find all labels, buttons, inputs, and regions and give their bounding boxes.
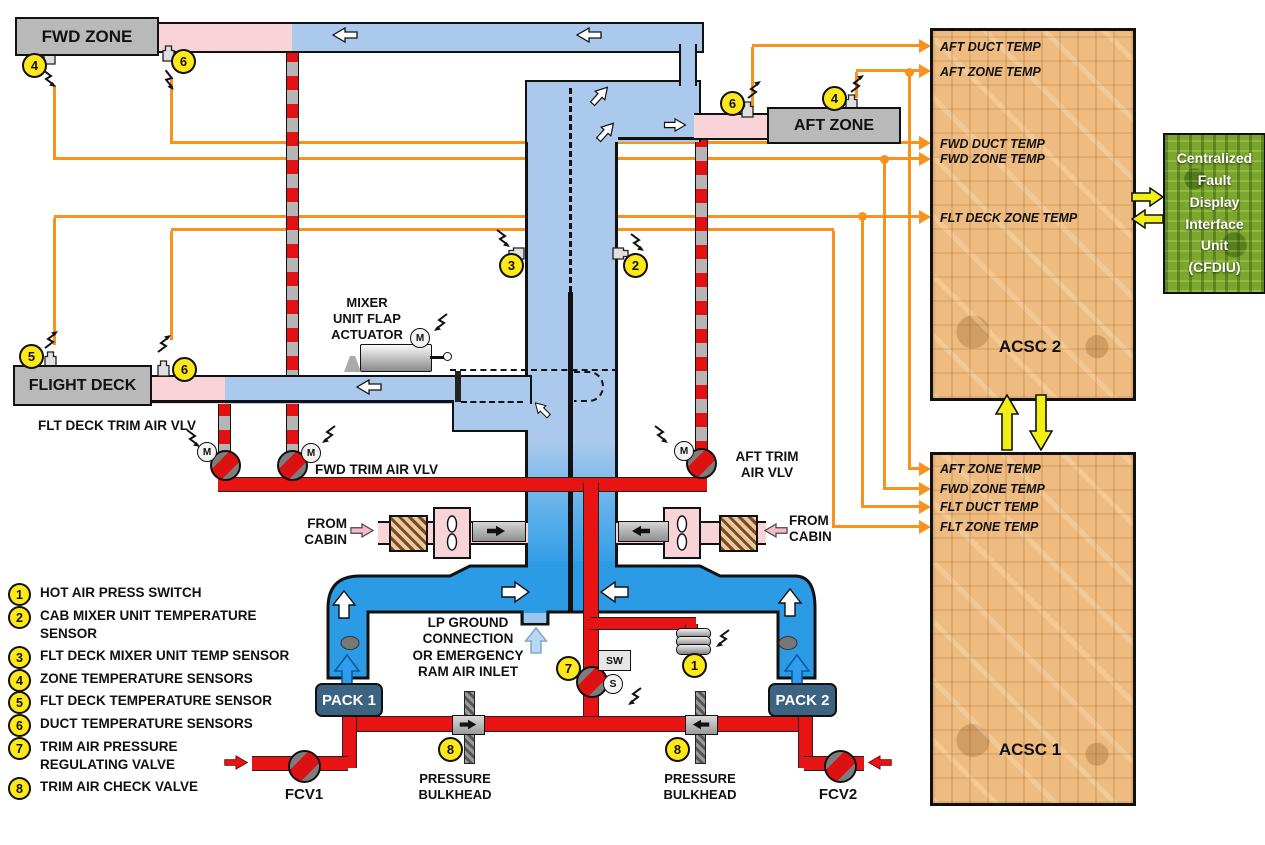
legend-text: FLT DECK TEMPERATURE SENSOR [40, 691, 272, 710]
acsc1-input-label: FLT DUCT TEMP [940, 500, 1038, 515]
badge-check-valve: 8 [438, 737, 463, 762]
signal-line [908, 72, 911, 470]
legend-badge: 5 [8, 691, 31, 714]
legend-badge: 7 [8, 737, 31, 760]
signal-line [54, 157, 919, 160]
legend-text: CAB MIXER UNIT TEMPERATURE SENSOR [40, 606, 257, 642]
pack2-box: PACK 2 [768, 683, 837, 717]
pack2-label: PACK 2 [776, 692, 830, 709]
flap-actuator-body [360, 344, 432, 372]
riser-edge-left [525, 140, 528, 572]
legend-item-5: 5 FLT DECK TEMPERATURE SENSOR [8, 691, 272, 714]
cfdiu-label: Centralized Fault Display Interface Unit… [1177, 148, 1252, 278]
trim-air-riser-fltdeck [218, 402, 231, 452]
warm-air-section [157, 24, 292, 51]
badge-zone-sensor: 4 [22, 53, 47, 78]
aft-trim-vlv-label: AFT TRIM AIR VLV [736, 449, 799, 482]
acsc1-input-label: AFT ZONE TEMP [940, 462, 1041, 477]
signal-junction [858, 212, 867, 221]
fan-blades-icon [675, 515, 689, 551]
flow-arrow-icon [662, 118, 688, 132]
pack1-label: PACK 1 [322, 692, 376, 709]
flap-bar [455, 371, 461, 402]
pack1-box: PACK 1 [315, 683, 383, 717]
duct-edge [148, 400, 454, 403]
legend-text: TRIM AIR CHECK VALVE [40, 777, 198, 796]
lightning-arrow-icon [848, 72, 870, 94]
duct-temp-sensor-icon [157, 360, 170, 377]
ram-air-arrow-icon [526, 628, 547, 653]
mixer-divider [568, 292, 573, 612]
fan-blades-icon [445, 515, 459, 551]
signal-line [884, 487, 919, 490]
flap-dashed-line [461, 401, 523, 403]
aft-zone-supply-duct [694, 113, 769, 140]
data-bus-arrow-icon [1131, 209, 1164, 229]
pressure-bulkhead-right-label: PRESSURE BULKHEAD [664, 771, 737, 803]
legend-badge: 3 [8, 646, 31, 669]
switch-circle: S [603, 674, 623, 694]
legend-badge: 8 [8, 777, 31, 800]
acsc2-title: ACSC 2 [999, 337, 1061, 358]
legend-item-7: 7 TRIM AIR PRESSURE REGULATING VALVE [8, 737, 178, 773]
legend-item-6: 6 DUCT TEMPERATURE SENSORS [8, 714, 253, 737]
signal-line [53, 85, 56, 160]
legend-badge: 1 [8, 583, 31, 606]
badge-cab-mixer-sensor: 2 [623, 253, 648, 278]
flight-deck-duct-extension [452, 400, 528, 432]
flow-arrow-icon [626, 525, 656, 537]
signal-line [862, 505, 919, 508]
lightning-arrow-icon [316, 424, 338, 446]
motor-icon: M [301, 443, 321, 463]
badge-check-valve: 8 [665, 737, 690, 762]
flow-arrow-icon [481, 525, 511, 537]
lightning-arrow-icon [628, 232, 650, 254]
flt-deck-trim-vlv-label: FLT DECK TRIM AIR VLV [38, 418, 196, 434]
flow-arrow-icon [576, 27, 602, 43]
legend-badge: 6 [8, 714, 31, 737]
acsc2-input-label: AFT ZONE TEMP [940, 65, 1041, 80]
badge-fltdeck-mixer-sensor: 3 [499, 253, 524, 278]
flow-arrow-icon [356, 379, 382, 395]
lightning-arrow-icon [155, 332, 177, 354]
lightning-arrow-icon [428, 312, 450, 334]
recirc-filter [389, 515, 428, 552]
badge-press-reg-valve: 7 [556, 656, 581, 681]
signal-junction [905, 68, 914, 77]
fcv2-valve [824, 750, 857, 783]
switch-box: SW [598, 650, 631, 671]
fcv2-label: FCV2 [819, 786, 857, 804]
signal-line [909, 467, 919, 470]
legend-text: TRIM AIR PRESSURE REGULATING VALVE [40, 737, 178, 773]
check-valve-arrow-icon [690, 719, 712, 730]
trim-air-riser-fwd [286, 48, 299, 375]
lightning-arrow-icon [622, 686, 644, 708]
pack-inlet-seal [341, 637, 359, 650]
signal-line [170, 231, 173, 340]
bleed-main-pipe [346, 716, 804, 732]
legend-item-8: 8 TRIM AIR CHECK VALVE [8, 777, 198, 800]
signal-line [861, 218, 864, 508]
recirc-filter [719, 515, 758, 552]
aft-zone-box: AFT ZONE [767, 107, 901, 144]
badge-duct-sensor: 6 [171, 49, 196, 74]
flap-actuator-foot [344, 356, 361, 372]
bleed-in-arrow-icon [866, 755, 894, 770]
trim-air-riser-aft [695, 133, 708, 452]
aft-zone-label: AFT ZONE [794, 117, 874, 135]
lightning-arrow-icon [42, 328, 64, 350]
lightning-arrow-icon [652, 424, 674, 446]
riser-edge-right [615, 140, 618, 572]
legend-badge: 4 [8, 669, 31, 692]
bleed-in-arrow-icon [222, 755, 250, 770]
badge-fltdeck-temp-sensor: 5 [19, 344, 44, 369]
acsc2-input-label: FWD DUCT TEMP [940, 137, 1045, 152]
signal-line [752, 44, 919, 47]
badge-hot-air-switch: 1 [682, 653, 707, 678]
legend-text: ZONE TEMPERATURE SENSORS [40, 669, 253, 688]
ac-zone-control-schematic: FWD ZONE AFT ZONE FLIGHT DECK M M M M SW… [0, 0, 1265, 845]
legend-text: HOT AIR PRESS SWITCH [40, 583, 202, 602]
pack-inlet-seal [779, 637, 797, 650]
legend-text: FLT DECK MIXER UNIT TEMP SENSOR [40, 646, 289, 665]
acsc2-input-label: FWD ZONE TEMP [940, 152, 1045, 167]
signal-line [833, 525, 919, 528]
lightning-arrow-icon [710, 628, 732, 650]
motor-icon: M [410, 328, 430, 348]
acsc2-input-label: AFT DUCT TEMP [940, 40, 1041, 55]
mixer-centerline-dashed [569, 88, 572, 292]
signal-line [883, 159, 886, 490]
motor-icon: M [197, 442, 217, 462]
signal-junction [880, 155, 889, 164]
signal-line [832, 231, 835, 528]
data-bus-arrow-icon [1029, 394, 1053, 451]
fwd-trim-vlv-label: FWD TRIM AIR VLV [315, 462, 438, 478]
legend-text: DUCT TEMPERATURE SENSORS [40, 714, 253, 733]
fcv1-valve [288, 750, 321, 783]
legend-item-1: 1 HOT AIR PRESS SWITCH [8, 583, 202, 606]
trim-air-riser-fwd-lower [286, 402, 299, 452]
legend-item-2: 2 CAB MIXER UNIT TEMPERATURE SENSOR [8, 606, 257, 642]
fwd-zone-box: FWD ZONE [15, 17, 159, 56]
data-bus-arrow-icon [1131, 187, 1164, 207]
acsc1-input-label: FWD ZONE TEMP [940, 482, 1045, 497]
flap-swing-arc [574, 371, 604, 402]
flap-actuator-knob [443, 352, 452, 361]
recirc-fan [433, 507, 471, 559]
lightning-arrow-icon [494, 228, 516, 250]
fcv1-label: FCV1 [285, 786, 323, 804]
fwd-zone-supply-duct [155, 22, 704, 53]
duct-connector [679, 44, 697, 86]
check-valve-arrow-icon [457, 719, 479, 730]
legend-item-3: 3 FLT DECK MIXER UNIT TEMP SENSOR [8, 646, 289, 669]
lightning-arrow-icon [745, 78, 767, 100]
acsc2-input-label: FLT DECK ZONE TEMP [940, 211, 1077, 226]
duct-edge [618, 137, 697, 140]
cfdiu-box: Centralized Fault Display Interface Unit… [1163, 133, 1265, 294]
cabin-in-arrow-icon [350, 523, 374, 538]
signal-line [53, 218, 56, 345]
flow-arrow-icon [332, 27, 358, 43]
data-bus-arrow-icon [995, 394, 1019, 451]
badge-duct-sensor: 6 [720, 91, 745, 116]
legend-badge: 2 [8, 606, 31, 629]
mixer-actuator-label: MIXER UNIT FLAP ACTUATOR [331, 295, 403, 343]
acsc1-input-label: FLT ZONE TEMP [940, 520, 1038, 535]
flight-deck-label: FLIGHT DECK [29, 377, 137, 395]
acsc1-title: ACSC 1 [999, 740, 1061, 761]
motor-icon: M [674, 441, 694, 461]
pressure-bulkhead-left-label: PRESSURE BULKHEAD [419, 771, 492, 803]
badge-duct-sensor: 6 [172, 357, 197, 382]
signal-line [54, 215, 919, 218]
cabin-in-arrow-icon [764, 523, 788, 538]
flight-deck-box: FLIGHT DECK [13, 365, 152, 406]
legend-item-4: 4 ZONE TEMPERATURE SENSORS [8, 669, 253, 692]
badge-zone-sensor: 4 [822, 86, 847, 111]
fwd-zone-label: FWD ZONE [42, 27, 133, 47]
